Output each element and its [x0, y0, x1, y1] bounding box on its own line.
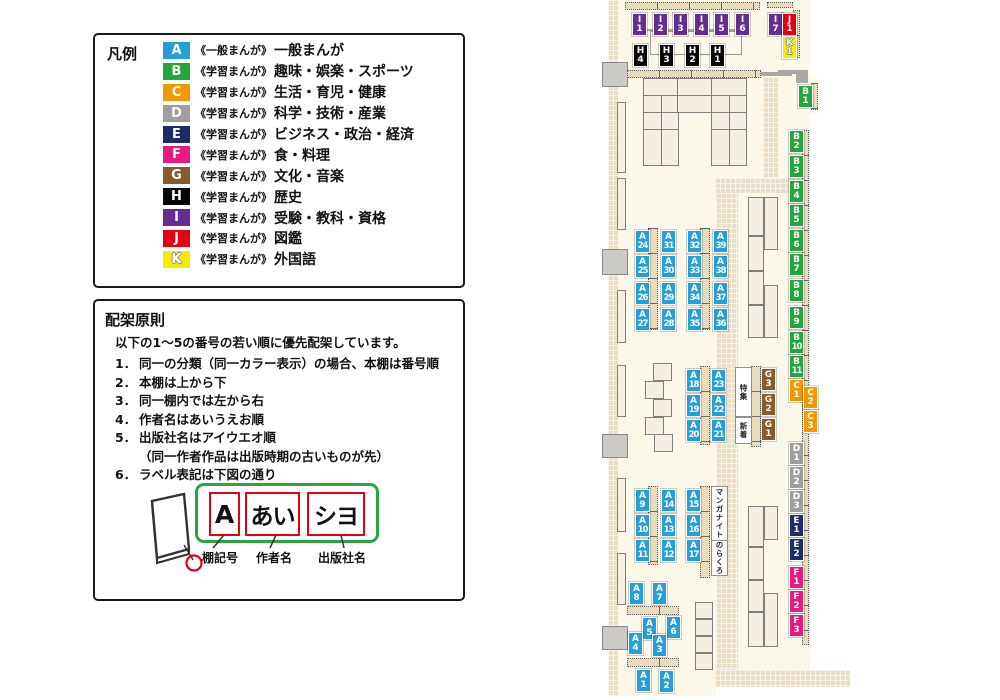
shelf-block [729, 95, 747, 113]
shelf-number: 3 [765, 380, 771, 389]
shelf-number: 2 [657, 25, 663, 34]
shelf-block [764, 593, 778, 647]
shelf-label-A39: A39 [713, 230, 728, 253]
shelf-label-A3: A3 [652, 634, 667, 657]
shelf-label-J1: J1 [782, 13, 797, 36]
label-example-diagram: A あい シヨ [195, 483, 379, 543]
shelf-number: 17 [689, 551, 699, 560]
legend-category: 趣味・娯楽・スポーツ [274, 61, 414, 81]
rule-4: 4．作者名はあいうえお順 [115, 411, 439, 430]
shelf-number: 29 [664, 294, 674, 303]
shelf-number: 2 [663, 682, 669, 691]
shelf-number: 7 [793, 265, 799, 274]
area-label-new-arrivals: 新着 [735, 417, 752, 444]
legend-scope: 《学習まんが》 [195, 251, 272, 267]
table [695, 619, 713, 636]
shelf-label-A19: A19 [686, 394, 701, 417]
shelf-label-G1: G1 [761, 418, 776, 441]
legend-scope: 《一般まんが》 [195, 42, 272, 58]
shelf-label-H1: H1 [710, 44, 725, 67]
legend-category: ビジネス・政治・経済 [274, 124, 414, 144]
shelf-label-I1: I1 [632, 13, 647, 36]
shelf-label-A4: A4 [628, 632, 643, 655]
shelf-label-I7: I7 [768, 13, 783, 36]
shelf-label-A13: A13 [661, 514, 676, 537]
rule-number: 6． [115, 466, 139, 485]
legend-item-H: H《学習まんが》歴史 [163, 186, 414, 207]
legend-category: 科学・技術・産業 [274, 103, 386, 123]
legend-item-K: K《学習まんが》外国語 [163, 249, 414, 270]
legend-category: 文化・音楽 [274, 166, 344, 186]
rule-6: （同一作者作品は出版時期の古いものが先） [115, 448, 439, 467]
shelf-label-D2: D2 [789, 466, 804, 489]
shelf-label-A10: A10 [635, 514, 650, 537]
shelf-block [764, 285, 778, 338]
shelf-number: 7 [772, 25, 778, 34]
shelf-number: 15 [689, 501, 699, 510]
shelf-number: 3 [793, 626, 799, 635]
shelf-number: 35 [690, 320, 700, 329]
shelf-number: 1 [793, 454, 799, 463]
legend-item-E: E《学習まんが》ビジネス・政治・経済 [163, 124, 414, 145]
legend-item-A: A《一般まんが》一般まんが [163, 40, 414, 61]
map-wall [715, 670, 850, 687]
wall-segment [796, 70, 808, 83]
shelf-number: 18 [689, 381, 699, 390]
legend-item-I: I《学習まんが》受験・教科・資格 [163, 207, 414, 228]
door-icon [602, 434, 628, 458]
shelf-number: 8 [633, 594, 639, 603]
shelf-label-G2: G2 [761, 393, 776, 416]
legend-category: 外国語 [274, 249, 316, 269]
shelf-label-H3: H3 [659, 44, 674, 67]
shelf-label-A11: A11 [635, 539, 650, 562]
door-icon [602, 626, 628, 650]
shelf-label-G3: G3 [761, 368, 776, 391]
shelf-number: 11 [792, 367, 802, 376]
legend-item-F: F《学習まんが》食・料理 [163, 144, 414, 165]
map-wall [763, 77, 778, 178]
legend-title: 凡例 [107, 43, 137, 64]
shelf-number: 1 [714, 56, 720, 65]
table [653, 399, 672, 417]
legend-swatch-B: B [163, 63, 190, 80]
legend-category: 食・料理 [274, 145, 330, 165]
rule-text: （同一作者作品は出版時期の古いものが先） [139, 448, 389, 467]
shelf-number: 21 [714, 431, 724, 440]
shelf-label-B7: B7 [789, 253, 804, 276]
shelf-number: 1 [793, 391, 799, 400]
legend-swatch-G: G [163, 167, 190, 184]
shelf-number: 12 [664, 551, 674, 560]
shelf-block [677, 95, 712, 113]
shelf-number: 2 [793, 478, 799, 487]
shelf-label-D3: D3 [789, 490, 804, 513]
shelf-strip [627, 658, 679, 667]
legend-scope: 《学習まんが》 [195, 210, 272, 226]
shelf-block [748, 197, 764, 236]
shelf-label-I6: I6 [735, 13, 750, 36]
example-publisher-box: シヨ [307, 492, 365, 536]
area-label-feature: 特集 [735, 367, 752, 417]
shelf-label-A25: A25 [635, 255, 650, 278]
shelf-number: 23 [714, 381, 724, 390]
wall-shelf [617, 290, 626, 343]
legend-swatch-K: K [163, 251, 190, 268]
shelf-label-E1: E1 [789, 514, 804, 537]
legend-scope: 《学習まんが》 [195, 147, 272, 163]
shelf-block [661, 129, 679, 166]
shelf-block [748, 271, 764, 305]
shelf-label-A27: A27 [635, 308, 650, 331]
shelf-block [729, 112, 747, 130]
legend-item-D: D《学習まんが》科学・技術・産業 [163, 103, 414, 124]
principles-intro: 以下の1～5の番号の若い順に優先配架しています。 [115, 332, 406, 351]
shelf-label-B6: B6 [789, 229, 804, 252]
shelf-number: 4 [793, 192, 799, 201]
rule-number: 3． [115, 392, 139, 411]
shelf-label-I2: I2 [653, 13, 668, 36]
shelf-number: 24 [638, 242, 648, 251]
caption-棚記号: 棚記号 [202, 549, 238, 566]
shelf-strip [767, 2, 793, 8]
shelf-label-I4: I4 [694, 13, 709, 36]
table [645, 381, 664, 399]
shelf-label-B10: B10 [789, 331, 804, 354]
shelf-number: 4 [637, 56, 643, 65]
shelf-label-A35: A35 [687, 308, 702, 331]
wall-shelf [617, 178, 626, 230]
shelf-block [643, 95, 662, 113]
legend-swatch-F: F [163, 146, 190, 163]
table [695, 653, 713, 670]
shelf-label-A16: A16 [686, 514, 701, 537]
shelf-number: 10 [638, 526, 648, 535]
rule-number: 2． [115, 374, 139, 393]
shelf-number: 38 [716, 267, 726, 276]
table [653, 363, 672, 381]
shelf-label-A15: A15 [686, 489, 701, 512]
shelf-number: 1 [786, 25, 792, 34]
shelf-label-A14: A14 [661, 489, 676, 512]
shelf-strip [751, 366, 761, 447]
shelf-number: 13 [664, 526, 674, 535]
shelf-number: 8 [793, 291, 799, 300]
shelf-number: 2 [793, 550, 799, 559]
shelf-number: 3 [807, 422, 813, 431]
legend-scope: 《学習まんが》 [195, 105, 272, 121]
shelf-label-A9: A9 [635, 489, 650, 512]
shelf-number: 4 [632, 644, 638, 653]
shelf-label-E2: E2 [789, 538, 804, 561]
shelf-label-B5: B5 [789, 204, 804, 227]
principles-title: 配架原則 [105, 309, 453, 330]
shelf-label-B2: B2 [789, 130, 804, 153]
shelf-number: 1 [786, 48, 792, 57]
rule-text: ラベル表記は下図の通り [139, 466, 277, 485]
shelf-label-A2: A2 [659, 670, 674, 693]
legend-panel: 凡例 A《一般まんが》一般まんがB《学習まんが》趣味・娯楽・スポーツC《学習まん… [93, 33, 465, 288]
shelf-number: 39 [716, 242, 726, 251]
shelf-label-A17: A17 [686, 539, 701, 562]
shelf-block [729, 129, 747, 166]
shelf-number: 4 [698, 25, 704, 34]
legend-scope: 《学習まんが》 [195, 126, 272, 142]
shelf-block [711, 112, 730, 130]
door-icon [602, 62, 628, 87]
shelf-label-A30: A30 [661, 255, 676, 278]
rule-2: 2．本棚は上から下 [115, 374, 439, 393]
shelf-label-A23: A23 [711, 369, 726, 392]
legend-swatch-D: D [163, 105, 190, 122]
legend-swatch-I: I [163, 209, 190, 226]
shelf-label-A33: A33 [687, 255, 702, 278]
shelf-number: 6 [739, 25, 745, 34]
shelf-label-F3: F3 [789, 614, 804, 637]
shelf-number: 3 [677, 25, 683, 34]
shelf-label-C1: C1 [789, 379, 804, 402]
rule-5: 5．出版社名はアイウエオ順 [115, 429, 439, 448]
shelf-number: 25 [638, 267, 648, 276]
legend-swatch-H: H [163, 188, 190, 205]
shelf-number: 11 [638, 551, 648, 560]
shelf-label-A38: A38 [713, 255, 728, 278]
shelf-number: 27 [638, 320, 648, 329]
shelf-number: 2 [689, 56, 695, 65]
shelf-label-A31: A31 [661, 230, 676, 253]
legend-swatch-A: A [163, 42, 190, 59]
shelf-number: 10 [792, 343, 802, 352]
shelf-number: 20 [689, 431, 699, 440]
shelf-number: 26 [638, 294, 648, 303]
shelf-block [661, 112, 679, 130]
shelf-number: 2 [807, 398, 813, 407]
shelf-label-D1: D1 [789, 442, 804, 465]
rule-number: 5． [115, 429, 139, 448]
shelf-number: 9 [793, 318, 799, 327]
shelf-number: 34 [690, 294, 700, 303]
shelf-number: 1 [640, 681, 646, 690]
shelf-block [643, 129, 662, 166]
shelf-number: 1 [793, 578, 799, 587]
rule-7: 6．ラベル表記は下図の通り [115, 466, 439, 485]
shelf-number: 16 [689, 526, 699, 535]
shelf-label-F2: F2 [789, 590, 804, 613]
legend-scope: 《学習まんが》 [195, 168, 272, 184]
rule-text: 同一の分類（同一カラー表示）の場合、本棚は番号順 [139, 355, 439, 374]
shelf-number: 1 [765, 430, 771, 439]
example-shelf-code-box: A [209, 492, 240, 536]
wall-shelf [617, 553, 626, 605]
shelf-label-F1: F1 [789, 566, 804, 589]
shelf-label-A6: A6 [666, 616, 681, 639]
shelf-block [748, 305, 764, 338]
shelf-label-A21: A21 [711, 419, 726, 442]
area-label-norakuro: のらくろ [711, 540, 728, 576]
shelf-number: 33 [690, 267, 700, 276]
shelf-strip [700, 486, 710, 578]
caption-作者名: 作者名 [256, 549, 292, 566]
table [695, 602, 713, 619]
shelf-label-C3: C3 [803, 410, 818, 433]
shelf-block [748, 236, 764, 271]
shelf-label-A29: A29 [661, 282, 676, 305]
shelf-number: 2 [793, 602, 799, 611]
shelf-label-B8: B8 [789, 279, 804, 302]
rule-text: 作者名はあいうえお順 [139, 411, 264, 430]
legend-scope: 《学習まんが》 [195, 230, 272, 246]
shelf-strip [625, 2, 760, 10]
legend-swatch-C: C [163, 84, 190, 101]
wall-shelf [617, 365, 626, 417]
shelf-label-A12: A12 [661, 539, 676, 562]
legend-item-G: G《学習まんが》文化・音楽 [163, 165, 414, 186]
shelf-label-A37: A37 [713, 282, 728, 305]
shelf-number: 5 [718, 25, 724, 34]
shelf-strip [627, 70, 761, 78]
shelf-label-B4: B4 [789, 180, 804, 203]
legend-category: 生活・育児・健康 [274, 82, 386, 102]
shelf-block [748, 547, 764, 580]
shelf-number: 37 [716, 294, 726, 303]
rule-text: 出版社名はアイウエオ順 [139, 429, 276, 448]
legend-scope: 《学習まんが》 [195, 84, 272, 100]
wall-shelf [617, 102, 626, 173]
shelf-label-B1: B1 [798, 85, 813, 108]
wall-shelf [617, 478, 626, 532]
shelf-label-I5: I5 [714, 13, 729, 36]
shelf-number: 32 [690, 242, 700, 251]
shelf-block [764, 197, 778, 250]
table [645, 417, 664, 435]
shelf-block [711, 78, 747, 96]
table [654, 434, 673, 452]
shelf-number: 2 [793, 142, 799, 151]
shelf-number: 36 [716, 320, 726, 329]
shelf-label-B11: B11 [789, 355, 804, 378]
legend-item-J: J《学習まんが》図鑑 [163, 228, 414, 249]
shelf-number: 19 [689, 406, 699, 415]
shelf-label-A36: A36 [713, 308, 728, 331]
shelf-block [711, 95, 730, 113]
shelf-number: 1 [802, 97, 808, 106]
legend-rows: A《一般まんが》一般まんがB《学習まんが》趣味・娯楽・スポーツC《学習まんが》生… [163, 40, 414, 270]
shelf-number: 30 [664, 267, 674, 276]
shelf-number: 14 [664, 501, 674, 510]
shelf-label-A1: A1 [636, 669, 651, 692]
area-label-manga-night: マンガナイト [711, 486, 728, 541]
shelf-block [643, 112, 662, 130]
shelf-number: 6 [670, 628, 676, 637]
legend-swatch-E: E [163, 126, 190, 143]
rule-number: 1． [115, 355, 139, 374]
shelf-label-A22: A22 [711, 394, 726, 417]
shelf-number: 31 [664, 242, 674, 251]
shelf-block [643, 78, 678, 96]
shelf-label-H4: H4 [633, 44, 648, 67]
shelf-label-A20: A20 [686, 419, 701, 442]
legend-scope: 《学習まんが》 [195, 189, 272, 205]
shelf-number: 1 [793, 526, 799, 535]
shelf-label-B9: B9 [789, 306, 804, 329]
shelf-label-H2: H2 [685, 44, 700, 67]
shelf-number: 3 [663, 56, 669, 65]
shelf-label-A24: A24 [635, 230, 650, 253]
shelf-number: 9 [639, 501, 645, 510]
shelf-number: 3 [793, 502, 799, 511]
map-wall [715, 178, 800, 193]
shelf-number: 5 [793, 216, 799, 225]
shelf-number: 3 [656, 646, 662, 655]
legend-category: 一般まんが [274, 40, 344, 60]
shelf-number: 3 [793, 167, 799, 176]
shelf-block [748, 580, 764, 612]
legend-category: 受験・教科・資格 [274, 208, 386, 228]
door-icon [602, 249, 628, 275]
shelf-label-A18: A18 [686, 369, 701, 392]
shelf-number: 28 [664, 320, 674, 329]
rule-number: 4． [115, 411, 139, 430]
shelf-label-I3: I3 [673, 13, 688, 36]
example-author-box: あい [245, 492, 300, 536]
shelf-block [764, 506, 778, 540]
shelf-label-A8: A8 [629, 582, 644, 605]
shelf-block [748, 506, 764, 547]
rule-text: 本棚は上から下 [139, 374, 227, 393]
shelf-strip [700, 366, 710, 445]
shelf-number: 1 [636, 25, 642, 34]
shelf-number: 22 [714, 406, 724, 415]
rule-text: 同一棚内では左から右 [139, 392, 264, 411]
legend-scope: 《学習まんが》 [195, 63, 272, 79]
legend-item-B: B《学習まんが》趣味・娯楽・スポーツ [163, 61, 414, 82]
shelf-label-A34: A34 [687, 282, 702, 305]
legend-category: 歴史 [274, 187, 302, 207]
shelf-label-A26: A26 [635, 282, 650, 305]
page: 凡例 A《一般まんが》一般まんがB《学習まんが》趣味・娯楽・スポーツC《学習まん… [0, 0, 1000, 700]
shelf-number: 6 [793, 241, 799, 250]
shelf-block [748, 612, 764, 647]
legend-item-C: C《学習まんが》生活・育児・健康 [163, 82, 414, 103]
caption-出版社名: 出版社名 [318, 549, 366, 566]
shelf-strip [627, 606, 679, 615]
shelf-label-A32: A32 [687, 230, 702, 253]
rule-3: 3．同一棚内では左から右 [115, 392, 439, 411]
rules-list: 1．同一の分類（同一カラー表示）の場合、本棚は番号順2．本棚は上から下3．同一棚… [115, 355, 439, 485]
shelf-label-A7: A7 [652, 582, 667, 605]
table [695, 636, 713, 653]
shelf-label-A28: A28 [661, 308, 676, 331]
rule-1: 1．同一の分類（同一カラー表示）の場合、本棚は番号順 [115, 355, 439, 374]
legend-swatch-J: J [163, 230, 190, 247]
shelf-number: 7 [656, 594, 662, 603]
shelf-label-B3: B3 [789, 155, 804, 178]
shelf-block [677, 78, 712, 96]
legend-category: 図鑑 [274, 228, 302, 248]
shelf-label-K1: K1 [782, 36, 797, 59]
shelf-label-C2: C2 [803, 386, 818, 409]
shelf-number: 2 [765, 405, 771, 414]
shelf-block [711, 129, 730, 166]
